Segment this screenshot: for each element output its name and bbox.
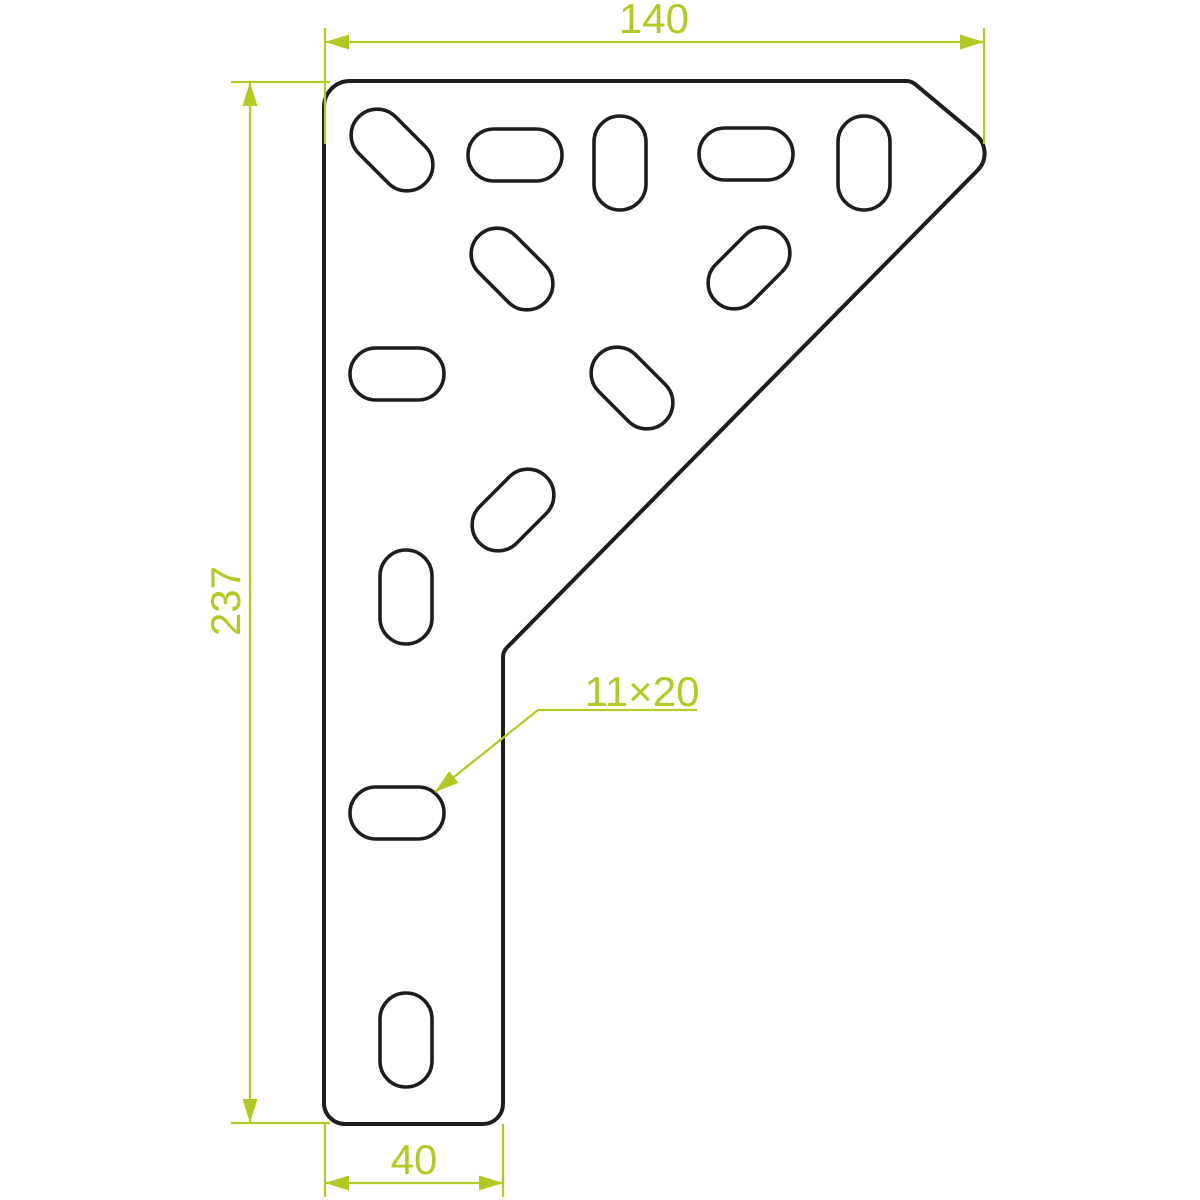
slot-hole	[468, 129, 562, 181]
slot-hole	[350, 348, 444, 400]
drawing-canvas: 140 237 40 11×20	[0, 0, 1200, 1200]
dimension-left-height: 237	[202, 82, 330, 1123]
arrowhead-right	[479, 1176, 503, 1191]
slot-hole	[699, 128, 793, 180]
dimension-bottom-width: 40	[325, 1124, 503, 1197]
arrowhead-left	[325, 1176, 349, 1191]
dimension-label-bottom-width: 40	[391, 1136, 438, 1183]
arrowhead-left	[325, 35, 349, 50]
arrowhead-bottom	[243, 1099, 258, 1123]
slot-hole	[380, 550, 432, 644]
slot-hole	[350, 787, 444, 839]
slot-hole	[380, 993, 432, 1087]
bracket-plate	[324, 81, 985, 1124]
arrowhead-top	[243, 82, 258, 106]
technical-drawing: 140 237 40 11×20	[0, 0, 1200, 1200]
dimension-label-top-width: 140	[619, 0, 689, 42]
arrowhead-right	[960, 35, 984, 50]
slot-hole	[838, 116, 890, 210]
slot-hole	[594, 116, 646, 210]
slot-size-label: 11×20	[585, 668, 700, 715]
dimension-label-left-height: 237	[202, 566, 249, 636]
